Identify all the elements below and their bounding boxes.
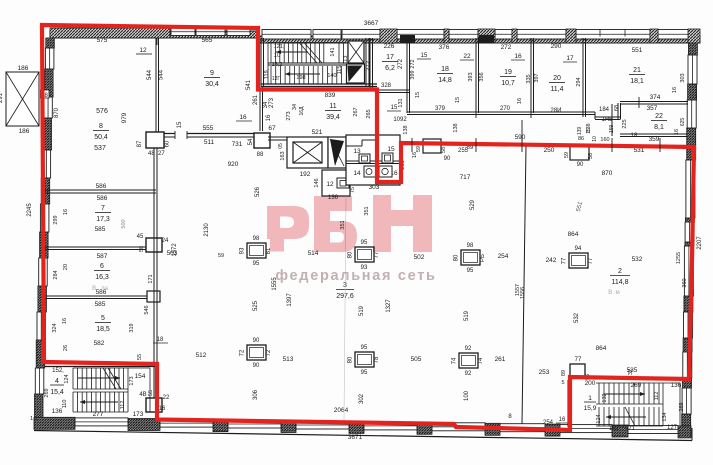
svg-text:272: 272	[501, 44, 512, 51]
svg-text:В .м: В .м	[608, 290, 619, 296]
svg-text:80: 80	[454, 254, 460, 261]
svg-text:271: 271	[625, 426, 636, 432]
svg-text:87: 87	[137, 140, 143, 147]
svg-text:328: 328	[381, 83, 392, 89]
svg-text:184: 184	[599, 107, 610, 113]
svg-text:115: 115	[337, 66, 343, 75]
svg-text:1: 1	[588, 395, 592, 402]
svg-text:16: 16	[266, 114, 272, 121]
svg-text:16: 16	[63, 209, 69, 215]
svg-text:77: 77	[562, 257, 568, 264]
svg-text:16: 16	[559, 417, 566, 423]
svg-text:4: 4	[55, 378, 59, 385]
svg-text:154: 154	[135, 373, 146, 380]
svg-text:272: 272	[366, 60, 372, 71]
svg-text:1397: 1397	[287, 293, 293, 307]
svg-text:541: 541	[246, 79, 252, 90]
svg-text:294: 294	[576, 77, 582, 86]
svg-text:920: 920	[228, 161, 239, 168]
svg-text:253: 253	[539, 369, 550, 376]
svg-text:269: 269	[679, 402, 685, 411]
svg-text:159: 159	[609, 125, 615, 134]
svg-text:138: 138	[586, 123, 592, 132]
svg-text:80: 80	[348, 251, 354, 258]
svg-text:68: 68	[614, 105, 620, 111]
svg-text:14,8: 14,8	[438, 77, 452, 84]
svg-text:1Н5: 1Н5	[601, 117, 613, 123]
svg-text:587: 587	[97, 253, 108, 260]
svg-text:225: 225	[622, 119, 628, 128]
svg-text:513: 513	[283, 356, 294, 363]
svg-text:119,: 119,	[264, 68, 270, 79]
svg-text:72: 72	[266, 349, 272, 356]
svg-text:267: 267	[353, 107, 359, 116]
svg-text:16: 16	[517, 98, 523, 104]
svg-text:1092: 1092	[393, 117, 407, 123]
svg-text:4В: 4В	[139, 392, 146, 398]
svg-text:15,4: 15,4	[50, 389, 64, 396]
svg-text:55: 55	[137, 354, 143, 360]
svg-text:532: 532	[632, 256, 643, 263]
svg-text:15: 15	[455, 97, 461, 103]
svg-text:272: 272	[398, 58, 404, 69]
svg-text:870: 870	[602, 170, 613, 177]
svg-text:226: 226	[384, 43, 395, 50]
svg-text:3667: 3667	[364, 20, 379, 27]
svg-text:254: 254	[543, 420, 554, 426]
svg-text:72: 72	[240, 349, 246, 356]
svg-text:112: 112	[120, 401, 126, 410]
svg-text:529: 529	[470, 199, 476, 210]
svg-text:22: 22	[163, 395, 170, 401]
svg-text:67: 67	[268, 125, 276, 132]
svg-text:федеральная сеть: федеральная сеть	[275, 268, 436, 284]
svg-text:575: 575	[97, 37, 108, 44]
svg-text:242: 242	[546, 257, 557, 264]
svg-text:6: 6	[100, 263, 104, 270]
svg-text:10: 10	[274, 53, 281, 59]
svg-text:10,7: 10,7	[501, 80, 515, 87]
svg-text:39,4: 39,4	[326, 114, 340, 121]
svg-text:273: 273	[286, 111, 292, 120]
svg-text:544: 544	[147, 69, 153, 80]
svg-text:565: 565	[202, 37, 213, 44]
svg-text:136: 136	[52, 408, 63, 415]
svg-text:399: 399	[410, 70, 416, 79]
svg-text:576: 576	[96, 108, 108, 115]
svg-text:05: 05	[278, 143, 284, 149]
svg-text:582: 582	[94, 340, 105, 347]
svg-text:19: 19	[504, 69, 512, 76]
svg-text:532: 532	[574, 312, 580, 323]
svg-text:1,1: 1,1	[30, 416, 38, 422]
svg-text:585: 585	[95, 301, 106, 308]
svg-text:10: 10	[592, 136, 598, 142]
svg-text:261: 261	[495, 356, 506, 363]
svg-text:152,: 152,	[52, 368, 64, 374]
svg-text:60: 60	[482, 38, 488, 44]
svg-text:27: 27	[158, 151, 165, 157]
svg-text:77: 77	[575, 357, 582, 363]
svg-text:95: 95	[361, 240, 368, 246]
svg-text:20: 20	[63, 264, 69, 270]
svg-text:2207: 2207	[697, 236, 703, 250]
svg-text:92: 92	[465, 346, 472, 352]
svg-text:397: 397	[534, 73, 540, 82]
svg-text:625: 625	[680, 118, 686, 127]
svg-text:78: 78	[374, 356, 380, 363]
svg-text:526: 526	[255, 186, 261, 197]
svg-text:15: 15	[421, 53, 428, 59]
svg-text:74: 74	[478, 357, 484, 364]
svg-text:1255: 1255	[676, 252, 682, 264]
svg-text:75: 75	[350, 187, 356, 193]
svg-text:535: 535	[627, 367, 638, 374]
svg-text:93: 93	[240, 247, 246, 254]
svg-text:261: 261	[253, 94, 259, 105]
svg-text:717: 717	[460, 174, 471, 181]
svg-text:90: 90	[253, 363, 260, 369]
svg-text:306: 306	[253, 389, 259, 400]
svg-text:88: 88	[257, 152, 264, 158]
svg-text:163: 163	[280, 151, 286, 160]
svg-text:18,1: 18,1	[630, 78, 644, 85]
svg-text:58: 58	[588, 153, 594, 159]
svg-text:537: 537	[94, 145, 106, 152]
svg-text:586: 586	[96, 183, 107, 190]
svg-text:136: 136	[671, 382, 682, 389]
svg-text:1327: 1327	[386, 299, 392, 313]
svg-text:86: 86	[578, 136, 584, 142]
svg-text:16: 16	[62, 318, 68, 324]
svg-text:585: 585	[95, 226, 106, 233]
svg-text:198: 198	[296, 75, 305, 81]
svg-text:324: 324	[52, 323, 58, 332]
svg-text:590: 590	[515, 134, 526, 141]
svg-text:98: 98	[467, 243, 474, 249]
svg-text:1556: 1556	[520, 287, 526, 299]
svg-text:94: 94	[575, 246, 582, 252]
svg-text:16,3: 16,3	[95, 274, 109, 281]
svg-text:55: 55	[148, 390, 154, 396]
svg-text:544: 544	[159, 69, 165, 80]
svg-text:146: 146	[314, 178, 320, 187]
svg-text:140: 140	[327, 73, 336, 79]
svg-text:5: 5	[101, 315, 105, 322]
svg-text:511: 511	[204, 139, 215, 146]
svg-text:15: 15	[387, 146, 395, 153]
svg-text:12: 12	[326, 181, 334, 188]
svg-text:80: 80	[348, 356, 354, 363]
svg-text:8,1: 8,1	[654, 124, 664, 131]
svg-text:95: 95	[253, 261, 260, 267]
svg-text:173: 173	[129, 376, 135, 385]
svg-text:303: 303	[369, 184, 380, 191]
svg-text:503: 503	[167, 250, 178, 257]
svg-text:7: 7	[101, 205, 105, 212]
svg-text:173: 173	[133, 411, 144, 418]
svg-text:139: 139	[577, 127, 583, 136]
svg-text:95: 95	[361, 370, 368, 376]
svg-text:291: 291	[0, 92, 4, 103]
svg-text:586: 586	[97, 195, 108, 202]
svg-text:15,9: 15,9	[584, 405, 597, 412]
svg-text:15: 15	[177, 121, 183, 128]
svg-text:21: 21	[633, 67, 641, 74]
svg-text:17: 17	[566, 55, 574, 62]
svg-text:2: 2	[618, 268, 622, 275]
svg-text:16,2: 16,2	[272, 62, 283, 68]
svg-text:359: 359	[649, 136, 660, 143]
svg-text:121,: 121,	[274, 44, 285, 50]
svg-text:16: 16	[239, 114, 247, 121]
svg-text:290: 290	[551, 43, 562, 50]
svg-text:50,4: 50,4	[94, 134, 108, 141]
svg-text:979: 979	[121, 112, 128, 123]
svg-text:357: 357	[647, 105, 658, 112]
svg-text:54: 54	[248, 138, 254, 145]
svg-text:95: 95	[467, 268, 474, 274]
svg-text:200: 200	[585, 380, 596, 387]
svg-text:РБ: РБ	[480, 254, 486, 262]
svg-text:864: 864	[568, 231, 579, 238]
svg-text:555: 555	[203, 125, 214, 132]
svg-text:17,3: 17,3	[96, 216, 110, 223]
svg-text:9: 9	[210, 70, 214, 77]
svg-text:11: 11	[329, 103, 336, 110]
svg-text:34: 34	[292, 104, 298, 110]
svg-text:839: 839	[325, 92, 336, 99]
svg-text:100: 100	[464, 390, 470, 401]
svg-text:95: 95	[361, 345, 368, 351]
svg-text:59: 59	[564, 152, 570, 158]
svg-text:59: 59	[218, 253, 224, 259]
svg-text:74: 74	[452, 357, 458, 364]
svg-text:519: 519	[464, 310, 470, 321]
svg-text:356: 356	[479, 72, 485, 81]
svg-text:2245: 2245	[27, 203, 33, 217]
svg-text:59: 59	[416, 146, 422, 152]
svg-text:319: 319	[129, 323, 135, 332]
svg-text:181: 181	[609, 426, 620, 432]
svg-text:132: 132	[602, 393, 608, 402]
svg-text:360: 360	[682, 278, 688, 287]
svg-text:134: 134	[662, 412, 668, 421]
svg-text:90: 90	[577, 162, 584, 168]
svg-text:505: 505	[411, 356, 422, 363]
svg-text:269: 269	[631, 382, 642, 389]
svg-text:500: 500	[121, 219, 127, 228]
svg-text:512: 512	[196, 352, 207, 359]
svg-text:171: 171	[148, 274, 154, 283]
svg-text:114,8: 114,8	[612, 279, 629, 286]
svg-text:160: 160	[600, 137, 609, 143]
svg-text:110: 110	[62, 400, 68, 409]
svg-text:8: 8	[99, 123, 103, 130]
svg-text:192: 192	[300, 171, 311, 178]
svg-text:12: 12	[139, 47, 147, 54]
svg-text:11,4: 11,4	[550, 86, 563, 93]
svg-text:16: 16	[159, 406, 166, 412]
svg-text:22: 22	[463, 53, 471, 60]
svg-text:16: 16	[514, 53, 522, 60]
svg-text:376: 376	[439, 44, 450, 51]
svg-text:864: 864	[596, 345, 607, 352]
svg-text:28И: 28И	[551, 108, 562, 114]
svg-text:20: 20	[553, 75, 561, 82]
svg-text:546: 546	[144, 305, 150, 314]
svg-text:90: 90	[444, 156, 451, 162]
svg-text:186: 186	[19, 128, 30, 135]
svg-text:870: 870	[54, 107, 60, 118]
svg-text:270: 270	[500, 106, 511, 112]
svg-text:127: 127	[667, 425, 678, 431]
svg-text:16Д: 16Д	[299, 106, 305, 116]
svg-text:89: 89	[561, 370, 567, 376]
svg-text:2130: 2130	[204, 223, 210, 237]
svg-text:112: 112	[654, 392, 660, 401]
svg-text:250: 250	[544, 147, 555, 154]
svg-text:16: 16	[672, 87, 678, 93]
svg-text:77: 77	[588, 257, 594, 264]
svg-text:138: 138	[453, 123, 459, 132]
svg-text:30,4: 30,4	[205, 81, 219, 88]
svg-text:551: 551	[632, 47, 643, 54]
svg-text:302: 302	[359, 393, 365, 404]
svg-text:15: 15	[415, 92, 421, 98]
svg-text:525: 525	[253, 300, 259, 311]
svg-text:18,5: 18,5	[96, 326, 110, 333]
svg-text:90: 90	[253, 338, 260, 344]
svg-text:5: 5	[561, 380, 564, 386]
svg-text:18: 18	[631, 133, 638, 139]
svg-text:731: 731	[232, 141, 243, 148]
svg-text:3671: 3671	[348, 434, 363, 441]
svg-text:284: 284	[53, 270, 59, 279]
svg-text:18: 18	[441, 66, 449, 73]
svg-text:379: 379	[435, 106, 446, 112]
svg-text:12Г: 12Г	[272, 76, 281, 82]
svg-text:299: 299	[53, 215, 59, 224]
svg-text:77: 77	[374, 251, 380, 258]
svg-text:2064: 2064	[334, 407, 349, 414]
svg-text:269: 269	[44, 388, 50, 397]
svg-text:303: 303	[680, 73, 686, 82]
svg-text:98: 98	[253, 236, 260, 242]
svg-text:92: 92	[465, 371, 472, 377]
svg-text:18: 18	[157, 337, 164, 343]
svg-text:60: 60	[165, 140, 171, 147]
svg-text:272: 272	[410, 59, 416, 68]
svg-text:24: 24	[162, 238, 169, 244]
svg-text:14: 14	[353, 170, 361, 177]
svg-text:6,2: 6,2	[385, 65, 395, 72]
svg-text:254: 254	[498, 253, 509, 260]
svg-text:519: 519	[359, 305, 365, 316]
svg-text:124: 124	[64, 374, 70, 383]
svg-text:265: 265	[366, 109, 372, 118]
svg-text:586: 586	[96, 289, 107, 296]
svg-text:186: 186	[18, 65, 29, 72]
svg-text:277: 277	[93, 411, 104, 418]
svg-text:45: 45	[137, 234, 144, 240]
svg-text:16: 16	[412, 152, 418, 158]
svg-text:26: 26	[63, 345, 69, 351]
svg-text:502: 502	[414, 254, 425, 261]
svg-text:138: 138	[403, 125, 409, 134]
svg-text:124: 124	[596, 414, 602, 423]
svg-text:351: 351	[364, 206, 370, 215]
svg-text:521: 521	[312, 129, 323, 136]
svg-text:17: 17	[386, 54, 394, 61]
svg-text:131: 131	[398, 98, 404, 107]
svg-text:273: 273	[269, 97, 275, 108]
svg-text:22: 22	[655, 113, 663, 120]
svg-text:58: 58	[139, 246, 145, 252]
svg-text:393: 393	[468, 72, 474, 81]
svg-text:15: 15	[391, 105, 398, 111]
svg-text:374: 374	[650, 94, 661, 101]
svg-text:141: 141	[330, 47, 336, 56]
svg-text:58: 58	[441, 147, 447, 153]
